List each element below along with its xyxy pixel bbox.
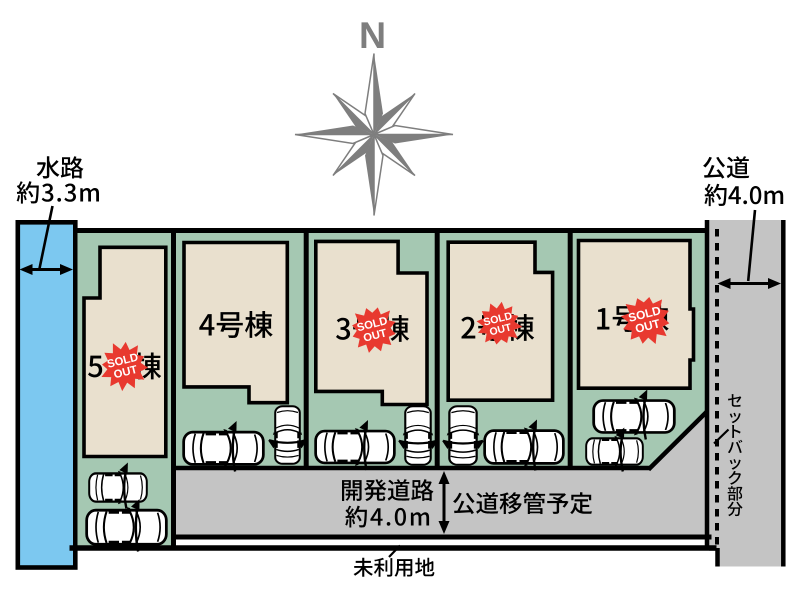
svg-text:N: N	[359, 14, 386, 56]
